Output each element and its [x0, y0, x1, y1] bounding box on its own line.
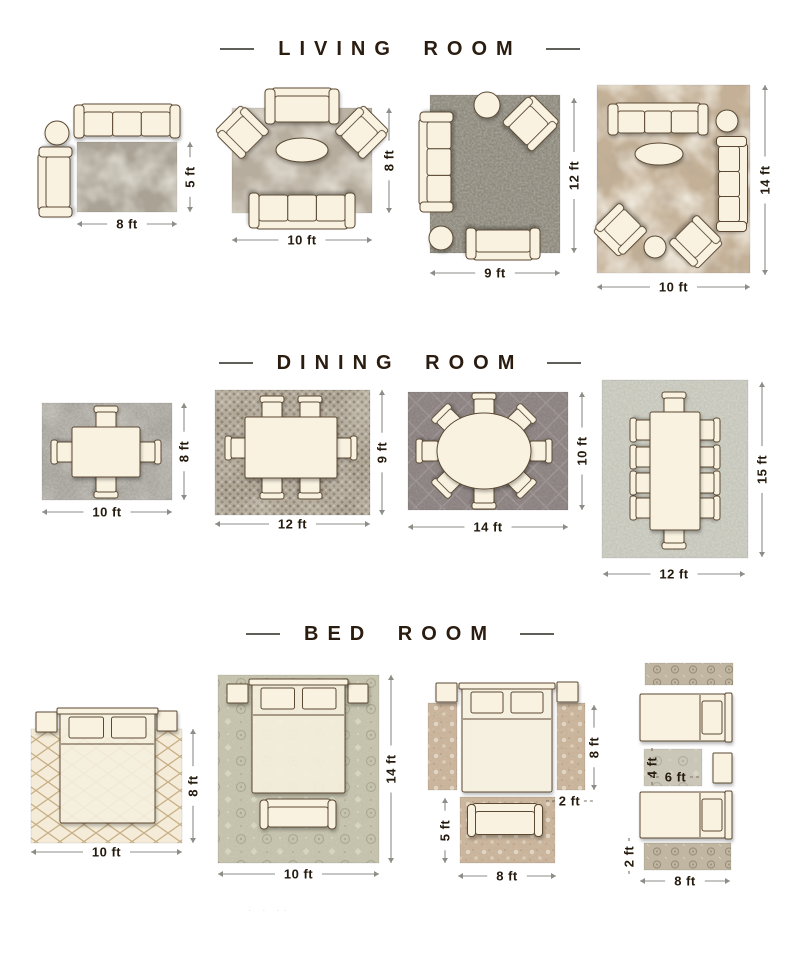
bed-room-rug-10x14: 10 ft14 ft — [218, 675, 399, 882]
section-title-bed-room: BED ROOM — [304, 623, 496, 646]
living-room-rug-10x14: 10 ft14 ft — [592, 85, 773, 295]
dimension-label: 10 ft — [232, 233, 372, 248]
chair — [630, 496, 652, 520]
chair — [298, 477, 322, 499]
svg-text:8 ft: 8 ft — [186, 775, 201, 797]
chair — [662, 392, 686, 414]
svg-text:14 ft: 14 ft — [473, 520, 502, 535]
svg-text:8 ft: 8 ft — [587, 737, 602, 759]
round-table — [716, 110, 738, 132]
round-table — [45, 121, 69, 145]
chair — [698, 418, 720, 442]
oval-table — [437, 413, 531, 489]
sofa — [74, 104, 180, 138]
chair — [472, 393, 496, 415]
oval-table — [635, 143, 683, 165]
svg-text:14 ft: 14 ft — [758, 165, 773, 194]
nightstand — [36, 712, 57, 732]
svg-text:8 ft: 8 ft — [116, 217, 138, 232]
bed-room-runners-8x2-rug-8x5: 8 ft2 ft5 ft8 ft — [428, 682, 602, 884]
section-dining-room: 10 ft8 ft12 ft9 ft14 ft10 ft12 ft15 ft — [42, 380, 770, 582]
dimension-label: 8 ft — [177, 403, 192, 500]
chair — [630, 471, 652, 495]
dimension-label: 9 ft — [430, 266, 560, 281]
bed-room-rug-10x8: 10 ft8 ft — [31, 708, 201, 860]
table — [72, 427, 140, 477]
header-dash — [219, 362, 253, 364]
section-header-living-room: LIVING ROOM — [0, 36, 800, 62]
sofa — [717, 137, 748, 232]
chair — [698, 471, 720, 495]
bed — [249, 679, 348, 793]
chair — [416, 439, 438, 463]
bedh — [640, 693, 732, 742]
svg-text:5 ft: 5 ft — [438, 820, 453, 842]
dimension-label: 10 ft — [575, 392, 590, 510]
svg-text:8 ft: 8 ft — [177, 441, 192, 463]
header-dash — [520, 633, 554, 635]
nightstand — [348, 684, 368, 703]
svg-text:15 ft: 15 ft — [755, 455, 770, 484]
sofa — [608, 103, 708, 135]
svg-text:9 ft: 9 ft — [375, 442, 390, 464]
dimension-label: 8 ft — [382, 108, 397, 213]
dining-room-rug-10x8: 10 ft8 ft — [42, 403, 192, 520]
svg-text:10 ft: 10 ft — [287, 233, 316, 248]
section-bed-room: 10 ft8 ft10 ft14 ft8 ft2 ft5 ft8 ft4 ft6… — [31, 663, 733, 889]
bedh — [640, 791, 732, 839]
svg-text:2 ft: 2 ft — [622, 846, 637, 868]
nightstand — [713, 753, 732, 783]
chair — [225, 436, 247, 460]
chair — [260, 477, 284, 499]
chair — [630, 418, 652, 442]
chair — [51, 440, 73, 464]
chair — [630, 445, 652, 469]
chair — [94, 476, 118, 498]
rug-abstract-gray — [77, 142, 177, 212]
svg-text:6 ft: 6 ft — [665, 770, 687, 785]
svg-text:8 ft: 8 ft — [496, 869, 518, 884]
dining-room-rug-12x9: 12 ft9 ft — [215, 390, 390, 532]
chair — [94, 406, 118, 428]
rug-size-guide: 8 ft5 ft10 ft8 ft9 ft12 ft10 ft14 ft10 f… — [0, 0, 800, 978]
dimension-label: 12 ft — [567, 98, 582, 253]
section-title-living-room: LIVING ROOM — [278, 38, 521, 61]
bench — [260, 799, 336, 829]
table — [650, 412, 700, 530]
chair — [698, 445, 720, 469]
svg-text:10 ft: 10 ft — [92, 845, 121, 860]
dimension-label: 14 ft — [384, 675, 399, 863]
sofa — [249, 193, 355, 229]
svg-text:8 ft: 8 ft — [674, 874, 696, 889]
section-header-bed-room: BED ROOM — [0, 621, 800, 647]
bed-room-twin-beds-runners: 4 ft6 ft2 ft8 ft — [622, 663, 734, 889]
svg-text:14 ft: 14 ft — [384, 754, 399, 783]
dimension-label: 8 ft — [458, 869, 556, 884]
dimension-label: 10 ft — [218, 867, 379, 882]
header-dash — [246, 633, 280, 635]
header-dash — [546, 48, 580, 50]
svg-text:4 ft: 4 ft — [645, 757, 660, 779]
rug-floral-tan — [428, 703, 457, 790]
nightstand — [157, 711, 177, 731]
section-living-room: 8 ft5 ft10 ft8 ft9 ft12 ft10 ft14 ft — [38, 85, 773, 295]
living-room-rug-10x8: 10 ft8 ft — [214, 88, 397, 248]
dimension-label: 12 ft — [215, 517, 370, 532]
rug-ornate-beige — [644, 843, 731, 870]
nightstand — [436, 683, 457, 702]
rug-layouts-figure: 8 ft5 ft10 ft8 ft9 ft12 ft10 ft14 ft10 f… — [0, 0, 800, 978]
header-dash — [220, 48, 254, 50]
svg-text:12 ft: 12 ft — [278, 517, 307, 532]
oval-table — [276, 138, 328, 162]
dimension-label: 8 ft — [640, 874, 730, 889]
round-table — [429, 226, 453, 250]
dimension-label: 5 ft — [438, 798, 453, 863]
svg-text:12 ft: 12 ft — [567, 161, 582, 190]
chair — [298, 396, 322, 418]
dimension-label: 2 ft — [622, 838, 637, 875]
chair — [472, 487, 496, 509]
chair — [260, 396, 284, 418]
rug-ornate-beige — [645, 663, 733, 685]
dimension-label: 14 ft — [758, 85, 773, 275]
living-room-rug-8x5: 8 ft5 ft — [38, 104, 198, 232]
dining-room-rug-14x10: 14 ft10 ft — [408, 392, 590, 535]
chair — [530, 439, 552, 463]
dimension-label: 9 ft — [375, 390, 390, 515]
table — [245, 417, 337, 478]
sofa — [466, 228, 540, 260]
chair — [139, 440, 161, 464]
round-table — [474, 92, 500, 118]
bed — [57, 708, 158, 823]
bench — [468, 804, 543, 837]
dimension-label: 10 ft — [31, 845, 182, 860]
dimension-label: 12 ft — [603, 567, 745, 582]
dimension-label: 14 ft — [408, 520, 568, 535]
dimension-label: 8 ft — [587, 705, 602, 790]
svg-text:10 ft: 10 ft — [575, 436, 590, 465]
sofa — [419, 112, 453, 212]
dimension-label: 10 ft — [42, 505, 172, 520]
dimension-label: 8 ft — [77, 217, 177, 232]
section-header-dining-room: DINING ROOM — [0, 350, 800, 376]
svg-text:2 ft: 2 ft — [559, 794, 581, 809]
watermark: · · ·· — [248, 905, 291, 916]
bed — [459, 683, 555, 792]
dimension-label: 8 ft — [186, 729, 201, 843]
dimension-label: 5 ft — [183, 142, 198, 212]
chair — [698, 496, 720, 520]
svg-text:10 ft: 10 ft — [284, 867, 313, 882]
round-table — [644, 236, 666, 258]
svg-text:9 ft: 9 ft — [484, 266, 506, 281]
svg-text:8 ft: 8 ft — [382, 150, 397, 172]
nightstand — [557, 682, 578, 702]
dimension-label: 10 ft — [597, 280, 750, 295]
svg-text:5 ft: 5 ft — [183, 166, 198, 188]
section-title-dining-room: DINING ROOM — [277, 352, 524, 375]
dimension-label: 15 ft — [755, 382, 770, 557]
living-room-rug-9x12: 9 ft12 ft — [419, 92, 582, 281]
sofa — [265, 88, 339, 124]
svg-text:10 ft: 10 ft — [659, 280, 688, 295]
dining-room-rug-12x15: 12 ft15 ft — [602, 380, 770, 582]
svg-text:12 ft: 12 ft — [659, 567, 688, 582]
sofa — [38, 147, 72, 217]
header-dash — [547, 362, 581, 364]
chair — [335, 436, 357, 460]
nightstand — [227, 684, 248, 703]
rug-floral-tan — [557, 703, 585, 790]
svg-text:10 ft: 10 ft — [92, 505, 121, 520]
